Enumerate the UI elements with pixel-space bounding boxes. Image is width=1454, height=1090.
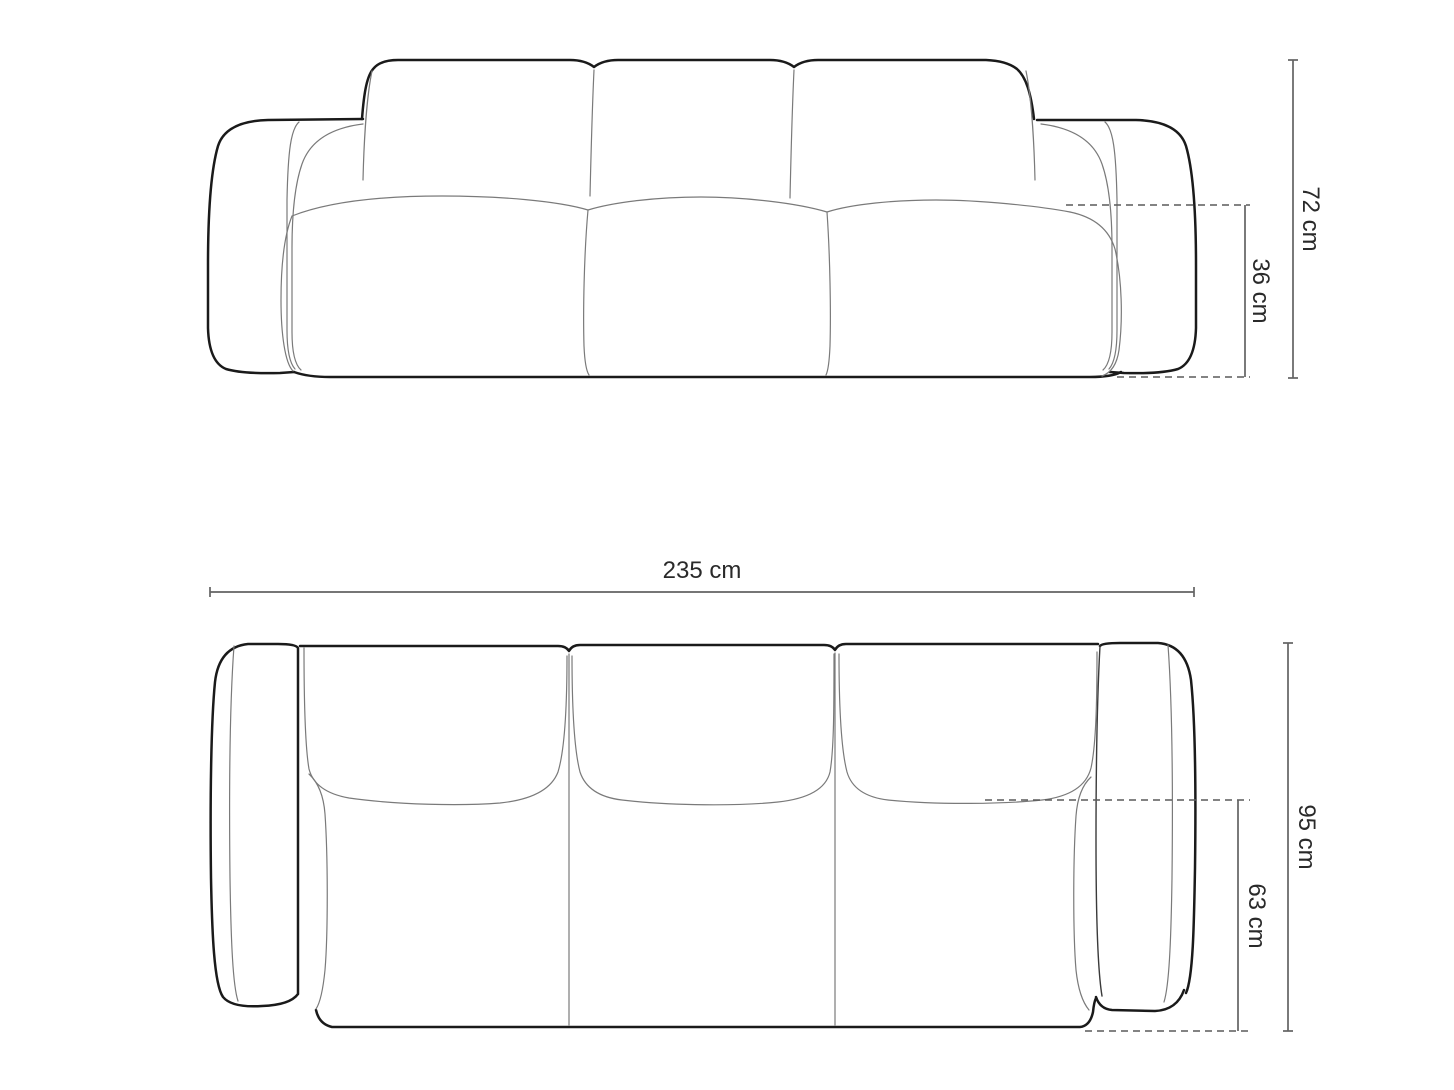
top-right-armrest-bottom-edge [1096,990,1184,1011]
top-sofa-seams [230,645,1173,1025]
top-back-edge [300,644,1098,651]
front-seat-height-dimension: 36 cm [1066,205,1274,377]
front-total-height-label: 72 cm [1297,186,1324,251]
front-right-armrest-seam-inner [1041,124,1112,370]
top-back-cushion-edge-2 [572,654,834,805]
total-width-label: 235 cm [663,557,742,584]
front-back-cushion-divider-2 [790,70,794,198]
sofa-dimensions-diagram: 36 cm 72 cm 235 cm [0,0,1454,1090]
top-seat-right-bulge [1074,777,1091,1010]
top-left-armrest-seam [230,646,238,1001]
front-right-armrest-seam-outer [1105,122,1117,369]
front-backrest-top-edge [362,60,1034,119]
front-left-armrest-seam-inner [292,124,363,370]
front-sofa-seams [281,70,1121,376]
top-right-armrest-seam [1164,645,1172,1002]
top-back-cushion-edge-3 [839,652,1097,803]
top-seat-depth-dimension: 63 cm [985,800,1270,1031]
front-view: 36 cm 72 cm [208,60,1324,378]
diagram-svg: 36 cm 72 cm 235 cm [0,0,1454,1090]
top-front-edge [316,998,1096,1027]
top-right-armrest-outline [1100,643,1195,993]
top-view: 63 cm 95 cm [211,643,1320,1031]
front-total-height-dimension: 72 cm [1288,60,1324,378]
front-back-cushion-left-seam [363,71,372,180]
front-left-armrest-outline [208,119,363,373]
front-seat-top-edge [292,196,1070,216]
top-total-depth-label: 95 cm [1293,804,1320,869]
top-sofa-outline [211,643,1196,1027]
top-seat-depth-label: 63 cm [1243,883,1270,948]
top-left-armrest-outline [211,644,298,1006]
front-back-cushion-divider-1 [590,70,594,196]
front-seat-right-edge [1070,212,1121,376]
front-seat-height-label: 36 cm [1247,258,1274,323]
top-total-depth-dimension: 95 cm [1283,643,1320,1031]
total-width-dimension: 235 cm [210,557,1194,597]
front-seat-divider-2 [826,212,830,375]
front-base-edge [294,372,1121,377]
top-seat-left-bulge [309,774,327,1009]
front-sofa-outline [208,60,1196,377]
front-left-armrest-seam-outer [287,122,299,369]
front-seat-divider-1 [584,210,589,375]
top-back-cushion-edge-1 [304,648,567,805]
